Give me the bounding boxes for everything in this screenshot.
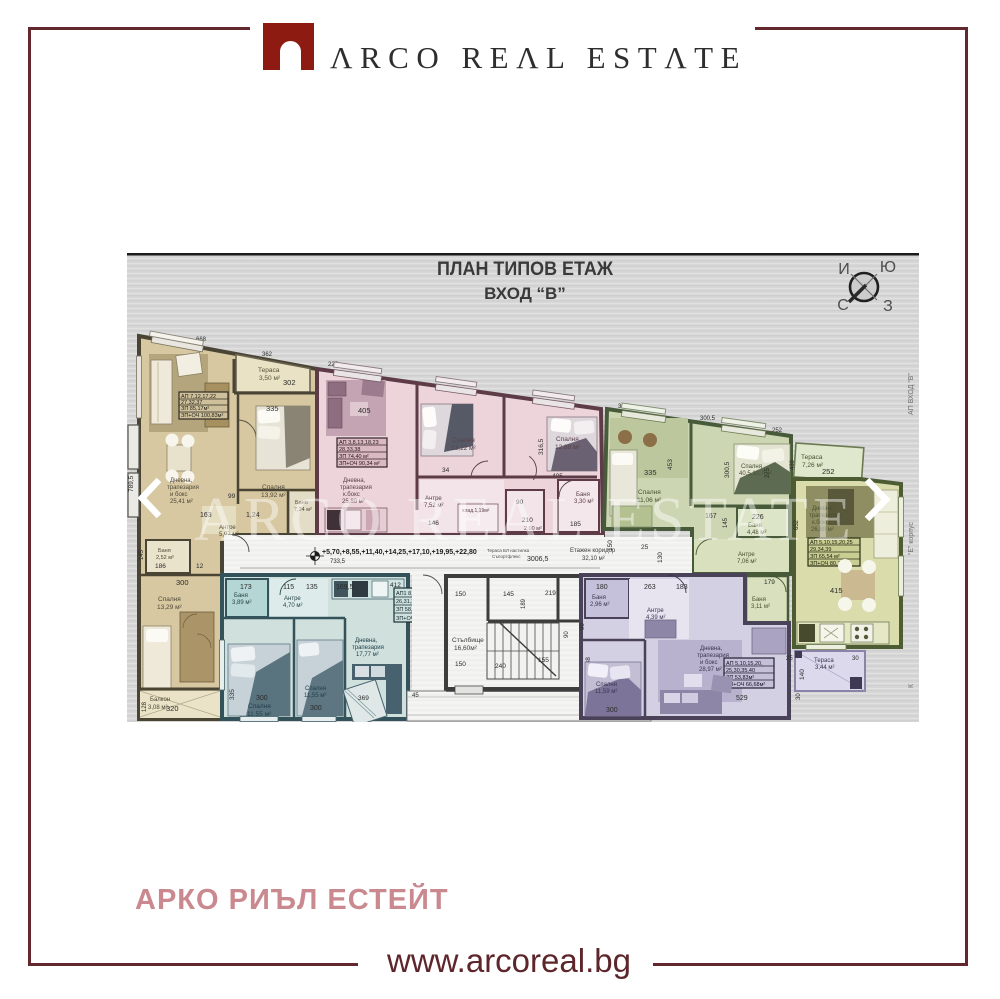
- svg-text:369: 369: [358, 695, 369, 702]
- svg-text:ЗП 65,54 м²: ЗП 65,54 м²: [810, 554, 840, 560]
- svg-text:140: 140: [799, 669, 806, 680]
- svg-text:7,06 м²: 7,06 м²: [737, 559, 756, 565]
- svg-text:25,30,35,40: 25,30,35,40: [726, 668, 755, 674]
- svg-text:И: И: [838, 261, 850, 278]
- svg-text:252: 252: [822, 467, 835, 476]
- svg-text:155: 155: [538, 657, 549, 664]
- svg-text:300: 300: [310, 705, 322, 712]
- svg-text:529: 529: [736, 695, 748, 702]
- svg-text:Баня: Баня: [158, 548, 171, 554]
- svg-text:ЗП+ОЧ 90,34 м²: ЗП+ОЧ 90,34 м²: [339, 461, 380, 467]
- svg-text:АП 5,10,15,20,: АП 5,10,15,20,: [726, 661, 763, 667]
- svg-text:ЗП+ОЧ 100,83м²: ЗП+ОЧ 100,83м²: [181, 413, 223, 419]
- svg-text:733,5: 733,5: [330, 559, 346, 565]
- svg-text:145: 145: [503, 591, 514, 598]
- svg-text:3,50 м²: 3,50 м²: [259, 375, 281, 382]
- svg-text:Балкон: Балкон: [150, 697, 170, 703]
- svg-text:145: 145: [139, 549, 145, 560]
- svg-text:300: 300: [256, 695, 268, 702]
- svg-text:186: 186: [155, 563, 166, 570]
- svg-text:275: 275: [765, 467, 771, 478]
- svg-text:3,11 м²: 3,11 м²: [751, 604, 770, 610]
- svg-text:335: 335: [644, 468, 657, 477]
- svg-text:11,59 м²: 11,59 м²: [595, 689, 617, 695]
- svg-text:Баня: Баня: [752, 597, 766, 603]
- svg-text:С: С: [837, 297, 849, 314]
- svg-text:Баня: Баня: [234, 593, 248, 599]
- svg-text:ЗП 85,17м²: ЗП 85,17м²: [181, 406, 209, 412]
- svg-text:335: 335: [266, 404, 279, 413]
- svg-text:415: 415: [830, 586, 843, 595]
- svg-text:Дневна,: Дневна,: [170, 478, 193, 484]
- svg-text:АП 3,8,13,18,23: АП 3,8,13,18,23: [339, 440, 379, 446]
- svg-text:Тераса: Тераса: [814, 658, 834, 664]
- svg-text:30: 30: [796, 693, 802, 700]
- svg-text:362: 362: [262, 352, 273, 358]
- svg-text:128: 128: [142, 701, 148, 712]
- svg-text:300,5: 300,5: [700, 416, 716, 422]
- svg-text:3006,5: 3006,5: [527, 556, 549, 563]
- svg-text:173: 173: [240, 584, 252, 591]
- svg-text:302: 302: [283, 378, 296, 387]
- svg-text:45: 45: [412, 693, 419, 699]
- svg-text:219: 219: [545, 590, 556, 597]
- svg-text:“Е” корпус: “Е” корпус: [908, 522, 915, 555]
- svg-text:316,5: 316,5: [538, 438, 545, 455]
- svg-text:Спалня: Спалня: [741, 464, 762, 470]
- svg-text:263: 263: [644, 584, 656, 591]
- svg-text:и бокс: и бокс: [170, 492, 187, 498]
- svg-text:25,41 м²: 25,41 м²: [170, 499, 193, 505]
- svg-text:453: 453: [667, 459, 674, 470]
- svg-text:З: З: [883, 298, 893, 315]
- svg-text:Стълбище: Стълбище: [452, 636, 484, 644]
- svg-text:115: 115: [283, 584, 294, 591]
- svg-text:30: 30: [852, 656, 859, 662]
- svg-text:трапезария: трапезария: [352, 645, 384, 651]
- svg-text:11,55 м²: 11,55 м²: [304, 693, 326, 699]
- svg-text:189: 189: [521, 598, 527, 609]
- svg-text:ВХОД “В”: ВХОД “В”: [484, 284, 566, 303]
- svg-text:ЗП 74,40 м²: ЗП 74,40 м²: [339, 454, 369, 460]
- svg-text:34: 34: [442, 467, 450, 474]
- svg-text:3,44 м²: 3,44 м²: [815, 665, 834, 671]
- svg-text:439: 439: [790, 459, 796, 470]
- svg-text:Спалня: Спалня: [556, 436, 579, 443]
- svg-text:Спалня: Спалня: [158, 596, 181, 603]
- svg-text:ПЛАН ТИПОВ ЕТАЖ: ПЛАН ТИПОВ ЕТАЖ: [437, 258, 613, 280]
- svg-text:179: 179: [764, 579, 775, 586]
- svg-text:Дневна,: Дневна,: [355, 638, 378, 644]
- svg-text:7,26 м²: 7,26 м²: [802, 462, 824, 469]
- svg-text:Съпортфлекс: Съпортфлекс: [492, 554, 521, 559]
- svg-text:16,60м²: 16,60м²: [454, 645, 478, 652]
- svg-text:32,10 м²: 32,10 м²: [582, 556, 605, 562]
- svg-text:252: 252: [772, 428, 783, 434]
- svg-text:180: 180: [596, 584, 608, 591]
- svg-text:28,33,38: 28,33,38: [339, 447, 360, 453]
- svg-text:Тераса: Тераса: [258, 367, 280, 374]
- svg-text:28,97 м²: 28,97 м²: [699, 667, 722, 673]
- svg-text:300: 300: [606, 707, 618, 714]
- svg-text:Антре: Антре: [284, 596, 301, 602]
- svg-text:12: 12: [196, 563, 204, 570]
- svg-text:3,89 м²: 3,89 м²: [232, 600, 251, 606]
- svg-text:150: 150: [455, 661, 466, 668]
- svg-text:789,5: 789,5: [128, 475, 135, 492]
- svg-text:25: 25: [786, 656, 793, 662]
- svg-text:АП ВХОД “В”: АП ВХОД “В”: [908, 373, 915, 415]
- svg-text:Ю: Ю: [880, 259, 896, 276]
- svg-text:169,5: 169,5: [336, 584, 354, 591]
- svg-text:Спалня: Спалня: [452, 437, 475, 444]
- svg-text:135: 135: [306, 584, 318, 591]
- svg-text:240: 240: [495, 663, 506, 670]
- svg-text:Спалня: Спалня: [248, 703, 271, 710]
- svg-text:3,08 м²: 3,08 м²: [148, 705, 167, 711]
- svg-text:Антре: Антре: [647, 608, 664, 614]
- svg-text:405: 405: [358, 406, 371, 415]
- svg-text:300: 300: [176, 578, 189, 587]
- svg-text:2,52 м²: 2,52 м²: [156, 555, 174, 561]
- svg-text:4,70 м²: 4,70 м²: [283, 603, 302, 609]
- svg-text:Спалня: Спалня: [596, 682, 617, 688]
- svg-text:300,5: 300,5: [724, 461, 731, 478]
- svg-text:17,77 м²: 17,77 м²: [356, 652, 379, 658]
- svg-text:13,12 м²: 13,12 м²: [451, 445, 477, 452]
- svg-text:Спалня: Спалня: [305, 686, 326, 692]
- svg-text:150: 150: [455, 591, 466, 598]
- svg-text:Баня: Баня: [592, 595, 606, 601]
- svg-text:Дневна,: Дневна,: [700, 646, 723, 652]
- svg-text:320: 320: [166, 704, 179, 713]
- svg-text:335: 335: [229, 689, 236, 700]
- svg-text:90: 90: [580, 623, 586, 630]
- svg-text:Тераса: Тераса: [801, 454, 823, 461]
- svg-text:12,88 м²: 12,88 м²: [555, 444, 581, 451]
- svg-text:2,96 м²: 2,96 м²: [590, 602, 609, 608]
- svg-text:183: 183: [676, 584, 688, 591]
- svg-text:ARCO REAL ESTATE: ARCO REAL ESTATE: [194, 486, 856, 554]
- svg-text:Дневна,: Дневна,: [343, 478, 366, 484]
- svg-text:13,29 м²: 13,29 м²: [157, 604, 183, 611]
- svg-text:и бокс: и бокс: [700, 660, 717, 666]
- svg-text:90: 90: [564, 631, 570, 638]
